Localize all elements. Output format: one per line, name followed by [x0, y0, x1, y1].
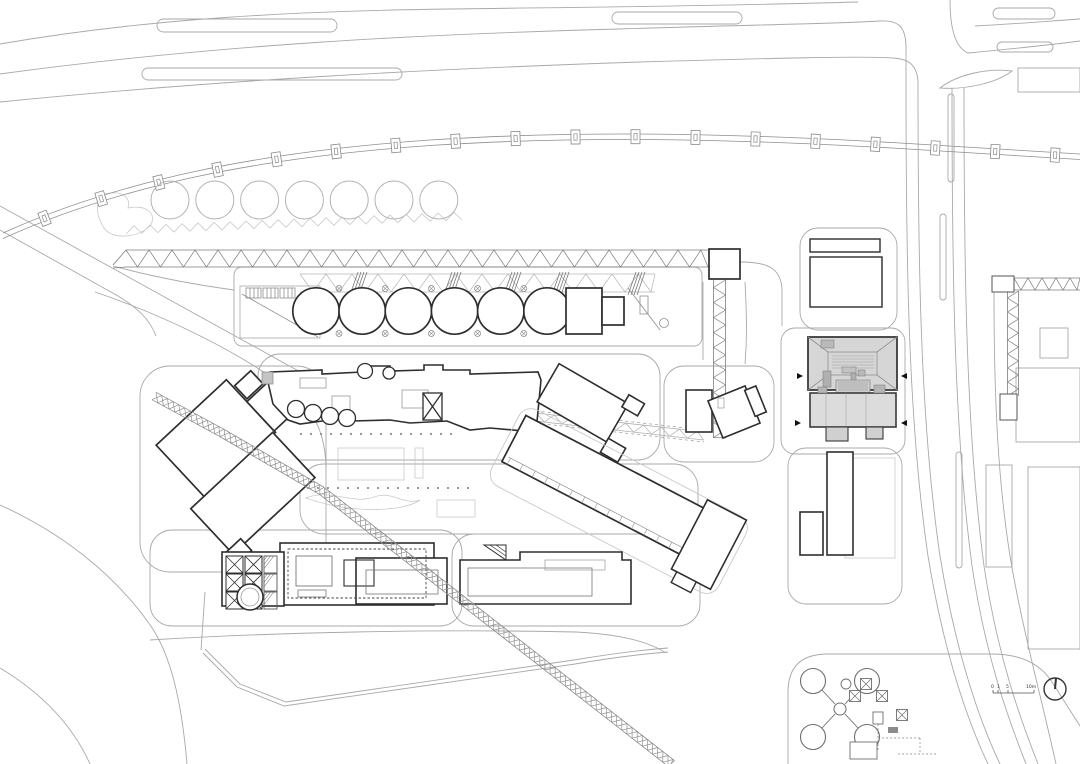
storage-tank — [801, 669, 826, 694]
path-tick — [367, 487, 369, 489]
tree-circle — [375, 181, 413, 219]
silo-joint-mark — [382, 286, 388, 292]
site-plan-drawing: 0 1 5 10m — [0, 0, 1080, 764]
parcel — [788, 654, 1080, 764]
gantry-post — [571, 130, 580, 144]
path-tick — [307, 487, 309, 489]
path-tick — [357, 487, 359, 489]
silo-circle — [524, 288, 570, 334]
scale-label-1: 1 — [997, 684, 1000, 690]
silo-joint-mark — [382, 331, 388, 337]
path-tick — [407, 487, 409, 489]
gantry-post — [691, 130, 700, 144]
ramp-wedge — [484, 545, 506, 560]
truss-cap — [992, 276, 1014, 292]
walkway-line — [203, 652, 668, 706]
road-line — [0, 230, 156, 336]
cell-xbox — [226, 556, 243, 573]
roof-hatch — [858, 370, 865, 376]
annex-bottom-tab — [866, 427, 883, 439]
truss-web — [319, 492, 674, 764]
roof-bar — [823, 371, 831, 387]
tank-hub — [834, 703, 846, 715]
path-tick — [320, 433, 322, 435]
gantry-post-outer — [751, 132, 760, 146]
roof-hatch — [821, 340, 834, 348]
path-tick — [337, 487, 339, 489]
roof-drum — [358, 364, 373, 379]
building-footprint — [827, 452, 853, 555]
equipment-box — [873, 712, 883, 724]
silo-circle — [293, 288, 339, 334]
truss-web — [1008, 291, 1019, 396]
tree-circle — [285, 181, 323, 219]
transfer-tower-footprint — [709, 249, 740, 279]
gantry-post-outer — [871, 137, 881, 151]
gantry-post-outer — [271, 152, 282, 167]
gantry-post — [930, 141, 940, 156]
scallop-bay — [322, 408, 339, 425]
tree-circle — [330, 181, 368, 219]
cross-shaped-building — [686, 382, 769, 438]
path-line — [0, 505, 187, 764]
gantry-post — [631, 130, 640, 144]
silo-joint-mark — [475, 331, 481, 337]
silo-joint-mark — [336, 331, 342, 337]
scale-label-10m: 10m — [1026, 684, 1036, 690]
truss-web — [126, 250, 708, 267]
silo-joint-mark — [521, 331, 527, 337]
scallop-bay — [339, 410, 356, 427]
north-arrow-needle — [1055, 678, 1056, 689]
path-tick — [420, 433, 422, 435]
path-line — [0, 668, 90, 764]
silo-circle — [431, 288, 477, 334]
tank-cluster — [801, 669, 939, 760]
road-median-island — [612, 12, 742, 24]
road-line — [0, 57, 918, 102]
road-median-island — [940, 214, 946, 300]
path-line — [201, 592, 205, 650]
gantry-post-outer — [930, 141, 940, 156]
conveyor-truss-horizontal — [113, 250, 708, 268]
storage-tank — [801, 725, 826, 750]
main-workshop-building — [262, 357, 650, 462]
equipment-xbox — [861, 679, 872, 690]
north-arrow — [1044, 678, 1066, 700]
building-footprint — [810, 257, 882, 307]
building-footprint — [267, 365, 541, 432]
road-line — [975, 19, 1080, 26]
building-outline-light — [1040, 328, 1068, 358]
north-east-building — [810, 239, 882, 307]
path-tick — [317, 487, 319, 489]
path-tick — [447, 487, 449, 489]
gantry-post — [451, 134, 461, 148]
scallop-bay — [288, 401, 305, 418]
cell-xbox — [245, 556, 262, 573]
gantry-post — [271, 152, 282, 167]
equipment-xbox — [850, 691, 861, 702]
gantry-post-outer — [331, 144, 342, 159]
road-line — [964, 88, 1038, 764]
gantry-post — [38, 210, 51, 226]
truss-cap — [1000, 394, 1017, 420]
road-line — [0, 206, 322, 384]
building-footprint — [686, 390, 712, 432]
silo-circle — [339, 288, 385, 334]
scale-label-5: 5 — [1006, 684, 1009, 690]
path-tick — [467, 487, 469, 489]
site-plan-canvas: 0 1 5 10m — [0, 0, 1080, 764]
road-median-island — [956, 452, 962, 568]
featured-annex — [810, 393, 896, 427]
building-footprint — [810, 239, 880, 252]
path-tick — [450, 433, 452, 435]
tree-circle — [151, 181, 189, 219]
path-tick — [380, 433, 382, 435]
path-tick — [400, 433, 402, 435]
equipment-xbox — [897, 710, 908, 721]
pump-house — [850, 742, 877, 759]
roof-hatch — [842, 367, 856, 373]
equipment-hatch — [888, 727, 898, 733]
path-tick — [310, 433, 312, 435]
path-tick — [327, 487, 329, 489]
building-footprint — [800, 512, 823, 555]
scallop-bay — [305, 405, 322, 422]
path-tick — [347, 487, 349, 489]
road-line — [0, 2, 858, 44]
path-tick — [360, 433, 362, 435]
stair-block — [836, 380, 870, 393]
equipment-xbox — [877, 691, 888, 702]
road-median-island — [948, 94, 954, 182]
east-truss-vertical — [1008, 291, 1019, 396]
gantry-post — [990, 144, 1000, 158]
path-tick — [457, 487, 459, 489]
featured-building — [795, 337, 907, 441]
silo-joint-mark — [475, 286, 481, 292]
path-tick — [340, 433, 342, 435]
gantry-post-outer — [511, 131, 520, 145]
piping-dashed — [878, 724, 938, 754]
gantry-post-outer — [811, 134, 821, 148]
landscape-plot — [415, 448, 423, 478]
east-truss-horizontal — [1014, 278, 1080, 290]
path-tick — [397, 487, 399, 489]
gantry-post-outer — [38, 210, 51, 226]
gantry-post — [751, 132, 760, 146]
gantry-post-outer — [631, 130, 640, 144]
gantry-post-outer — [451, 134, 461, 148]
gantry-post-outer — [691, 130, 700, 144]
tree-circle — [196, 181, 234, 219]
annex-roof-tab — [818, 387, 827, 393]
roof-drum — [383, 367, 395, 379]
path-tick — [410, 433, 412, 435]
gantry-post — [871, 137, 881, 151]
path-tick — [350, 433, 352, 435]
gantry-post — [391, 138, 401, 153]
silo-circles — [293, 288, 570, 334]
building-outline-light — [986, 465, 1012, 567]
path-tick — [437, 487, 439, 489]
tree-circle — [241, 181, 279, 219]
gantry-post — [1050, 148, 1060, 163]
annex-bottom-tab — [826, 427, 848, 441]
south-building — [460, 552, 631, 604]
gantry-post-outer — [391, 138, 401, 153]
path-tick — [387, 487, 389, 489]
gantry-post — [212, 162, 224, 177]
silo-battery — [240, 272, 669, 338]
silo-head-house — [566, 288, 624, 334]
gantry-post-outer — [95, 191, 108, 207]
building-annex-rotated — [622, 395, 645, 416]
road-line — [745, 282, 747, 364]
truss-web — [1014, 278, 1080, 290]
silo-circle — [385, 288, 431, 334]
path-tick — [427, 487, 429, 489]
road-median-island — [940, 70, 1012, 88]
gantry-post — [811, 134, 821, 148]
gantry-post — [331, 144, 342, 159]
stair-core-xbox — [423, 393, 442, 420]
road-line — [0, 21, 906, 80]
silo-joint-mark — [428, 286, 434, 292]
gantry-post — [511, 131, 520, 145]
aux-tank — [841, 679, 851, 689]
path-tick — [300, 433, 302, 435]
silo-joint-mark — [428, 331, 434, 337]
gantry-post-outer — [1050, 148, 1060, 163]
walkway-line — [205, 648, 668, 702]
path-tick — [440, 433, 442, 435]
path-tick — [330, 433, 332, 435]
roads-right-layer — [906, 80, 1056, 764]
building-annex-gray — [262, 372, 273, 384]
truss-lattice — [126, 250, 708, 267]
silo-circle — [478, 288, 524, 334]
path-tick — [430, 433, 432, 435]
path-tick — [390, 433, 392, 435]
gantry-post-outer — [990, 144, 1000, 158]
building-footprint — [356, 558, 447, 604]
building-outline-light — [1016, 368, 1080, 442]
scale-bar: 0 1 5 10m — [991, 684, 1036, 693]
path-tick — [370, 433, 372, 435]
path-tick — [377, 487, 379, 489]
path-line — [150, 631, 666, 653]
path-tick — [417, 487, 419, 489]
truss-end — [113, 250, 126, 268]
right-edge-structures — [986, 68, 1080, 649]
tree-row — [151, 181, 458, 219]
silo-joint-mark — [521, 286, 527, 292]
gantry-post-outer — [212, 162, 224, 177]
gantry-post-outer — [571, 130, 580, 144]
building-outline-light — [1018, 68, 1080, 92]
east-tall-buildings — [800, 452, 853, 555]
building-outline-light — [1028, 467, 1080, 649]
landscape-plot — [437, 500, 475, 517]
annex-roof-tab — [874, 385, 885, 393]
gantry-post — [95, 191, 108, 207]
road-median-island — [993, 8, 1055, 19]
scale-label-0: 0 — [991, 684, 994, 690]
